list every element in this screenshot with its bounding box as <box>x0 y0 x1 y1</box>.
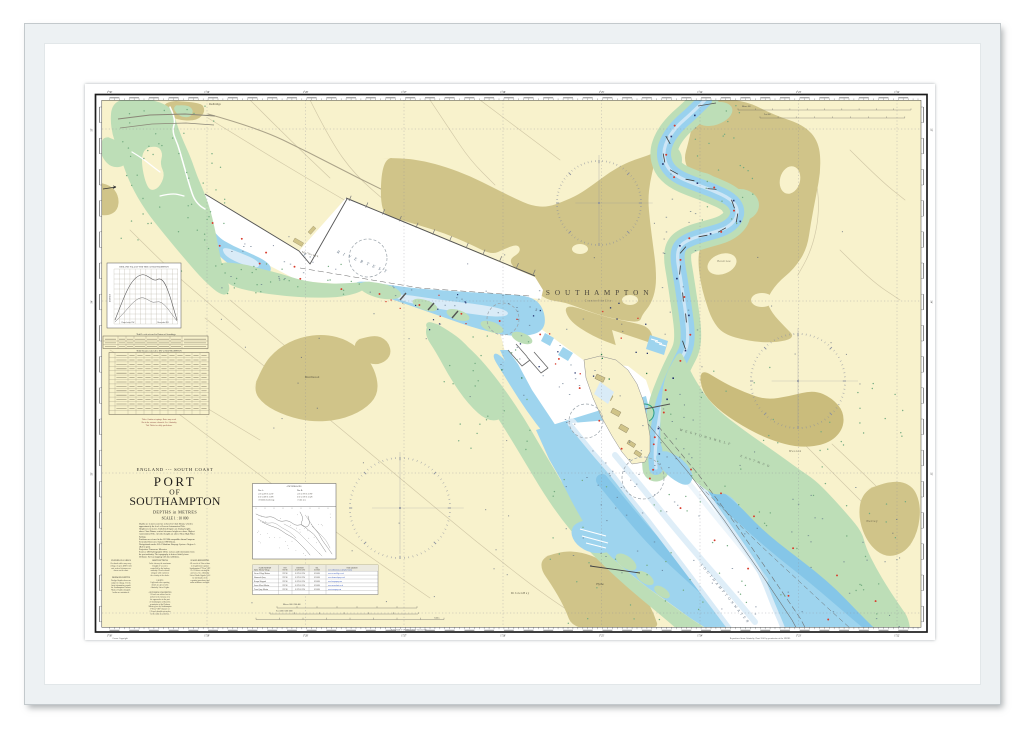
svg-text:50 52N 01 23W: 50 52N 01 23W <box>295 573 306 575</box>
svg-text:POSITION: POSITION <box>296 568 304 570</box>
svg-text:1°24': 1°24' <box>697 91 703 94</box>
svg-text:1°28': 1°28' <box>303 91 309 94</box>
svg-text:1°25': 1°25' <box>599 91 605 94</box>
svg-text:Crown Copyright: Crown Copyright <box>112 637 128 640</box>
svg-text:RISE AND FALL OF THE TIDE AT S: RISE AND FALL OF THE TIDE AT SOUTHAMPTON <box>119 266 169 269</box>
svg-text:Redbridge: Redbridge <box>209 103 221 106</box>
svg-text:Terrestrial Reference System 1: Terrestrial Reference System 1989 Datum. <box>139 540 176 543</box>
svg-text:Longitude 1°26' West from Gree: Longitude 1°26' West from Greenwich <box>391 628 427 631</box>
svg-text:S O U T H A M P T O N: S O U T H A M P T O N <box>546 289 650 297</box>
svg-text:Reproduced from Admiralty Char: Reproduced from Admiralty Chart 2041 by … <box>730 637 791 640</box>
svg-text:54': 54' <box>930 300 933 304</box>
svg-text:Tidal Streams referred to HW a: Tidal Streams referred to HW at SOUTHAMP… <box>136 350 182 353</box>
svg-text:Ocean Village Marina: Ocean Village Marina <box>254 572 270 575</box>
svg-text:VHF: VHF <box>283 568 286 570</box>
svg-text:VHF 80: VHF 80 <box>282 581 287 583</box>
svg-text:www.mdlmarinas.co.uk/hythe-mar: www.mdlmarinas.co.uk/hythe-marina <box>328 569 352 571</box>
svg-text:023 8020: 023 8020 <box>314 573 320 575</box>
svg-text:1°25': 1°25' <box>599 635 605 638</box>
svg-text:1°29': 1°29' <box>204 635 210 638</box>
svg-text:RADIO REPORTING: RADIO REPORTING <box>191 559 210 562</box>
svg-text:1°22': 1°22' <box>894 91 900 94</box>
svg-text:a 50 52.7N 01 22.9W: a 50 52.7N 01 22.9W <box>297 494 313 496</box>
svg-text:1°23': 1°23' <box>796 635 802 638</box>
svg-text:Tide Tables for daily predicti: Tide Tables for daily predictions. <box>146 424 173 427</box>
svg-text:a 50 54.2N 01 24.1W: a 50 54.2N 01 24.1W <box>258 494 274 496</box>
svg-text:approximately the level of Low: approximately the level of Lowest Astron… <box>139 525 186 528</box>
svg-text:DEPTHS in METRES: DEPTHS in METRES <box>153 510 197 515</box>
svg-text:Tidal Levels referred to Datum: Tidal Levels referred to Datum of Soundi… <box>136 333 175 336</box>
svg-text:Doc A:: Doc A: <box>258 489 264 492</box>
svg-text:023 8020: 023 8020 <box>314 569 320 571</box>
svg-text:Metres 100 0: Metres 100 0 200 400 <box>283 604 301 606</box>
svg-text:OVERHEAD CABLES: OVERHEAD CABLES <box>111 559 132 562</box>
svg-text:1°29': 1°29' <box>204 91 210 94</box>
svg-text:53': 53' <box>91 472 94 476</box>
svg-text:023 8020: 023 8020 <box>314 585 320 587</box>
svg-text:SOUTHAMPTON: SOUTHAMPTON <box>129 494 220 508</box>
svg-text:OBSTRUCTIONS: OBSTRUCTIONS <box>152 560 169 562</box>
svg-text:N e t l e y: N e t l e y <box>867 520 879 523</box>
svg-text:ENGLAND --- SOUTH COAST: ENGLAND --- SOUTH COAST <box>137 467 214 472</box>
svg-text:1°30': 1°30' <box>107 91 113 94</box>
svg-text:Shamrock Quay: Shamrock Quay <box>254 577 266 579</box>
svg-text:W e s t o n: W e s t o n <box>789 450 802 453</box>
svg-text:Metres 100: Metres 100 <box>742 106 751 108</box>
svg-text:Hythe: Hythe <box>596 582 604 586</box>
svg-text:Feet 300: Feet 300 <box>764 114 771 116</box>
svg-text:shown on the chart.: shown on the chart. <box>114 570 129 572</box>
svg-text:VHF 80: VHF 80 <box>282 577 287 579</box>
svg-text:Navigational marks: IALA Marit: Navigational marks: IALA Maritime Buoyag… <box>139 543 196 546</box>
svg-text:1°28': 1°28' <box>303 635 309 638</box>
svg-text:b 50 52.1N 01 22.4W: b 50 52.1N 01 22.4W <box>297 497 313 499</box>
svg-text:VHF 80: VHF 80 <box>282 573 287 575</box>
svg-text:55': 55' <box>930 128 933 132</box>
svg-text:berths are maintained.: berths are maintained. <box>113 592 130 594</box>
svg-text:Heights are in metres. Underli: Heights are in metres. Underlined figure… <box>139 528 191 531</box>
svg-text:Tides: Caution at springs. Rat: Tides: Caution at springs. Rates may rea… <box>142 418 176 421</box>
svg-text:c Prohibited anchorage: c Prohibited anchorage <box>258 499 275 502</box>
svg-text:Astronomical Tide. All other h: Astronomical Tide. All other heights are… <box>139 533 195 536</box>
svg-text:Ordnance Survey mapping with l: Ordnance Survey mapping with later addit… <box>139 556 180 559</box>
svg-text:023 8020: 023 8020 <box>314 581 320 583</box>
svg-text:53': 53' <box>930 472 933 476</box>
svg-text:D i b d e n B a y: D i b d e n B a y <box>511 592 530 595</box>
svg-text:023 8020: 023 8020 <box>314 589 320 591</box>
svg-text:50 52N 01 23W: 50 52N 01 23W <box>295 577 306 579</box>
svg-text:ANCHORAGES: ANCHORAGES <box>287 485 303 488</box>
svg-text:radar assistance available.: radar assistance available. <box>190 582 210 584</box>
svg-text:C o u n t y o f t h e C: C o u n t y o f t h e C i t y <box>585 300 612 303</box>
svg-text:VHF 80: VHF 80 <box>282 585 287 587</box>
svg-text:Admiralty List of Lights.: Admiralty List of Lights. <box>150 586 170 589</box>
svg-text:Town Quay Marina: Town Quay Marina <box>254 589 268 591</box>
svg-text:1°26': 1°26' <box>500 91 506 94</box>
svg-text:Feet 300 0: Feet 300 0 500 1000 <box>276 610 292 612</box>
svg-text:the port authority. The topogr: the port authority. The topography is de… <box>139 553 189 556</box>
svg-text:023 8020: 023 8020 <box>314 577 320 579</box>
svg-text:2kn in the entrance channels.: 2kn in the entrance channels. See Admira… <box>141 421 176 424</box>
svg-text:Saxon Wharf Marina: Saxon Wharf Marina <box>254 584 269 587</box>
svg-text:55': 55' <box>91 128 94 132</box>
svg-text:Cables: Cables <box>434 618 440 620</box>
svg-text:METRES: METRES <box>110 294 112 302</box>
svg-text:Doc B:: Doc B: <box>297 490 303 492</box>
svg-text:P e a r t r e e: P e a r t r e e <box>718 260 732 263</box>
svg-text:1°27': 1°27' <box>401 91 407 94</box>
svg-text:b 50 53.6N 01 23.8W: b 50 53.6N 01 23.8W <box>258 497 274 499</box>
svg-text:Positions are referred to the: Positions are referred to the WGS84 comp… <box>139 538 196 541</box>
svg-text:1°27': 1°27' <box>401 635 407 638</box>
svg-text:50 52N 01 23W: 50 52N 01 23W <box>295 581 306 583</box>
svg-text:50 52N 01 23W: 50 52N 01 23W <box>295 589 306 591</box>
svg-text:Hours after HW: Hours after HW <box>157 321 169 324</box>
svg-text:1°26': 1°26' <box>500 635 506 638</box>
svg-text:(Red to port).: (Red to port). <box>139 545 151 548</box>
svg-text:VHF 80: VHF 80 <box>282 569 287 571</box>
svg-text:50 52N 01 23W: 50 52N 01 23W <box>295 569 306 571</box>
svg-text:50 52N 01 23W: 50 52N 01 23W <box>295 585 306 587</box>
svg-text:above Chart Datum; vertical cl: above Chart Datum; vertical clearance he… <box>139 530 195 533</box>
svg-text:1°24': 1°24' <box>697 635 703 638</box>
svg-text:Marchwood: Marchwood <box>305 375 320 379</box>
svg-text:in the cable areas shown.: in the cable areas shown. <box>151 613 170 615</box>
svg-text:SCALE 1 : 10 000: SCALE 1 : 10 000 <box>162 517 189 521</box>
svg-text:1°23': 1°23' <box>796 91 802 94</box>
svg-text:Sources: UK Hydrographic Offic: Sources: UK Hydrographic Office surveys … <box>139 551 195 554</box>
svg-text:c Cable area: c Cable area <box>297 500 306 502</box>
svg-text:54': 54' <box>91 300 94 304</box>
svg-text:1°22': 1°22' <box>894 635 900 638</box>
svg-text:TEL: TEL <box>316 568 319 570</box>
svg-text:Kemps Shipyard: Kemps Shipyard <box>254 581 266 583</box>
svg-text:Springs.: Springs. <box>139 535 147 538</box>
svg-text:VHF 80: VHF 80 <box>282 589 287 591</box>
svg-text:DREDGED DEPTHS: DREDGED DEPTHS <box>112 577 131 579</box>
svg-text:the vicinity of the docks.: the vicinity of the docks. <box>151 574 170 577</box>
svg-text:Hours before HW: Hours before HW <box>122 321 135 324</box>
